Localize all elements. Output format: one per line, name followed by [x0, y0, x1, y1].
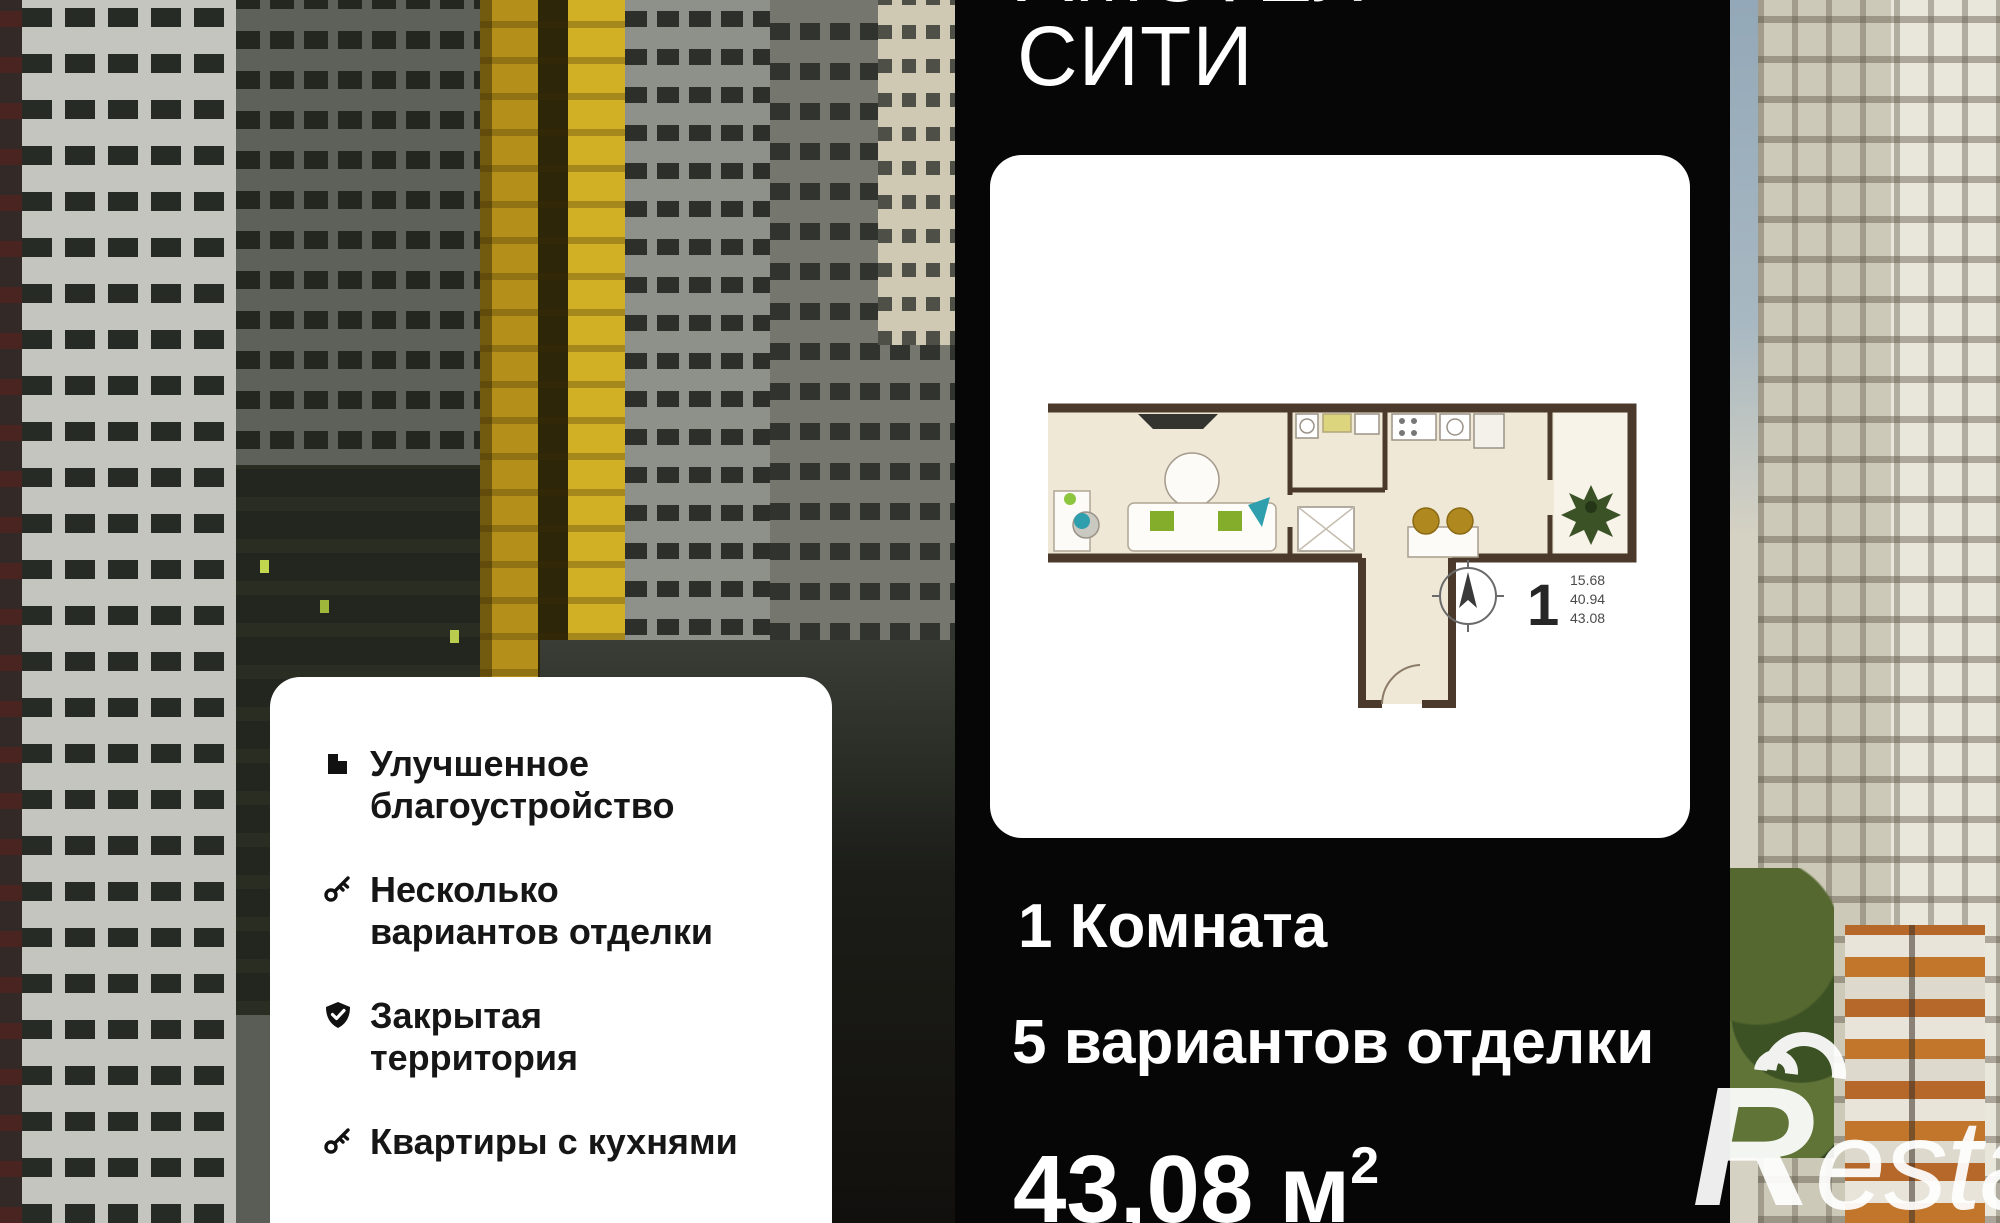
feature-label: Закрытая территория — [370, 995, 738, 1079]
pillow — [1218, 511, 1242, 531]
chair — [1413, 508, 1439, 534]
area-unit: м — [1279, 1136, 1350, 1223]
floor-plan-card: 1 15.68 40.94 43.08 — [990, 155, 1690, 838]
burner — [1411, 418, 1417, 424]
floor-plan: 1 15.68 40.94 43.08 — [990, 155, 1690, 838]
feature-item: Несколько вариантов отделки — [322, 869, 832, 953]
compass-needle — [1459, 572, 1477, 608]
plant-center — [1585, 501, 1597, 513]
key-icon — [322, 873, 354, 905]
area-text: 43,08м2 — [1013, 1142, 1379, 1223]
feature-item: Закрытая территория — [322, 995, 832, 1079]
area-exponent: 2 — [1350, 1137, 1379, 1195]
legend-room-count: 1 — [1527, 573, 1559, 638]
key-icon — [322, 1125, 354, 1157]
feature-label: Улучшенное благоустройство — [370, 743, 738, 827]
burner — [1399, 430, 1405, 436]
feature-item: Квартиры с кухнями — [322, 1121, 832, 1163]
chair-seat — [1074, 513, 1090, 529]
building-facade — [236, 0, 498, 489]
complex-name-line2: СИТИ — [1017, 14, 1254, 98]
building-icon — [322, 747, 354, 779]
info-panel: АМСТЕЛ СИТИ — [955, 0, 1730, 1223]
area-value: 43,08 — [1013, 1136, 1253, 1223]
entry-hall-floor — [1362, 558, 1452, 704]
chair — [1447, 508, 1473, 534]
stove — [1392, 414, 1436, 440]
legend-living-area: 15.68 — [1570, 572, 1605, 588]
desk-plant — [1064, 493, 1076, 505]
pillow — [1150, 511, 1174, 531]
legend-total-area: 43.08 — [1570, 610, 1605, 626]
restate-logo-r: R — [1692, 1062, 1815, 1223]
right-building-photo — [1730, 0, 2000, 1223]
building-facade — [878, 0, 955, 345]
burner — [1399, 418, 1405, 424]
room-count-text: 1 Комната — [1018, 896, 1327, 958]
feature-label: Несколько вариантов отделки — [370, 869, 738, 953]
shield-check-icon — [322, 999, 354, 1031]
features-card: Улучшенное благоустройство Несколько вар… — [270, 677, 832, 1223]
building-facade — [22, 0, 236, 1223]
legend-usable-area: 40.94 — [1570, 591, 1605, 607]
finish-options-text: 5 вариантов отделки — [1012, 1012, 1654, 1074]
round-table — [1165, 453, 1219, 507]
feature-item: Улучшенное благоустройство — [322, 743, 832, 827]
bath-fixture — [1323, 414, 1351, 432]
balcony-plant — [1561, 485, 1621, 545]
restate-logo-text: estate — [1815, 1101, 2000, 1223]
feature-label: Квартиры с кухнями — [370, 1121, 738, 1163]
lit-windows — [260, 560, 269, 573]
toilet — [1355, 414, 1379, 434]
fridge — [1474, 414, 1504, 448]
restate-watermark: R estate — [1692, 1062, 2000, 1223]
sink — [1440, 414, 1470, 440]
building-facade — [625, 0, 770, 673]
promo-image: Улучшенное благоустройство Несколько вар… — [0, 0, 2000, 1223]
burner — [1411, 430, 1417, 436]
